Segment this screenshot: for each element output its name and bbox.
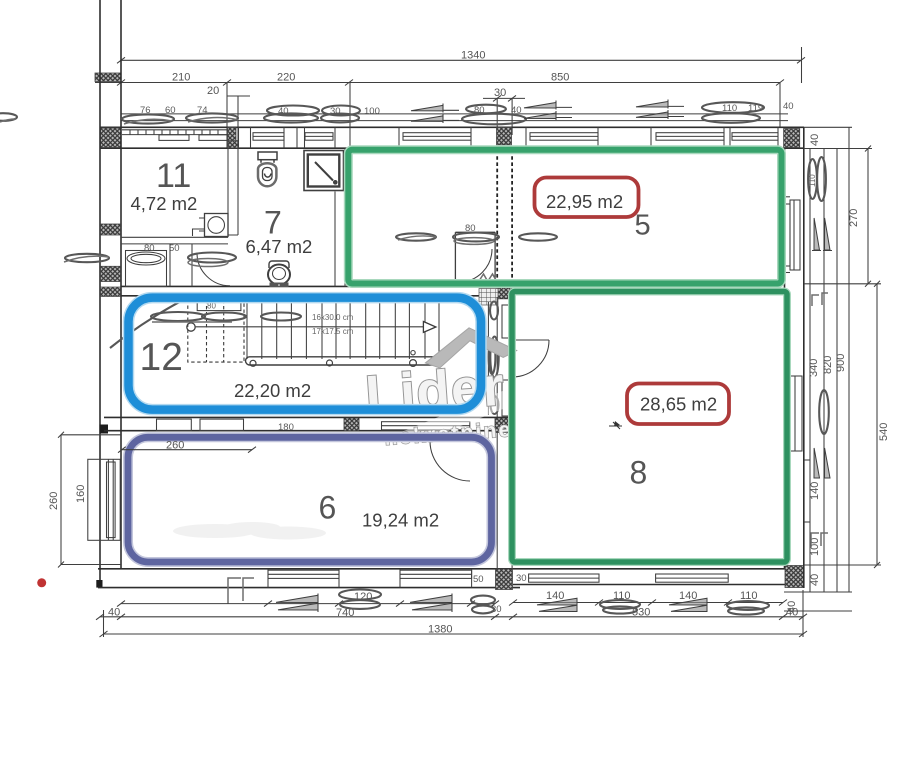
svg-text:30: 30 bbox=[491, 604, 502, 615]
svg-text:540: 540 bbox=[878, 423, 890, 441]
svg-text:140: 140 bbox=[809, 482, 821, 500]
svg-text:17x17.5 cm: 17x17.5 cm bbox=[312, 327, 354, 336]
svg-text:820: 820 bbox=[822, 356, 834, 374]
svg-text:8: 8 bbox=[630, 455, 648, 491]
svg-text:100: 100 bbox=[364, 106, 380, 117]
svg-text:40: 40 bbox=[783, 101, 794, 112]
svg-text:12: 12 bbox=[140, 336, 183, 379]
svg-text:110: 110 bbox=[808, 174, 817, 187]
svg-text:19,24 m2: 19,24 m2 bbox=[362, 509, 439, 530]
svg-text:22,95 m2: 22,95 m2 bbox=[546, 191, 623, 212]
svg-text:270: 270 bbox=[848, 209, 860, 227]
svg-text:20: 20 bbox=[207, 85, 219, 97]
svg-text:1380: 1380 bbox=[428, 624, 452, 636]
svg-text:30: 30 bbox=[494, 87, 506, 99]
svg-text:260: 260 bbox=[48, 492, 60, 510]
svg-text:80: 80 bbox=[144, 243, 155, 254]
svg-text:4,72 m2: 4,72 m2 bbox=[131, 193, 198, 214]
svg-text:22,20 m2: 22,20 m2 bbox=[234, 380, 311, 401]
svg-text:40: 40 bbox=[809, 574, 821, 586]
svg-text:50: 50 bbox=[169, 243, 180, 254]
svg-text:30: 30 bbox=[516, 573, 527, 584]
svg-text:140: 140 bbox=[546, 590, 564, 602]
svg-text:1340: 1340 bbox=[461, 50, 485, 62]
svg-text:50: 50 bbox=[473, 574, 484, 585]
svg-text:340: 340 bbox=[808, 359, 820, 377]
svg-text:6: 6 bbox=[319, 489, 337, 525]
svg-text:220: 220 bbox=[277, 72, 295, 84]
svg-text:850: 850 bbox=[551, 72, 569, 84]
svg-text:5: 5 bbox=[635, 210, 651, 242]
svg-text:40: 40 bbox=[108, 607, 120, 619]
svg-text:40: 40 bbox=[809, 134, 821, 146]
svg-text:11: 11 bbox=[156, 157, 191, 195]
svg-text:6,47 m2: 6,47 m2 bbox=[246, 236, 313, 257]
svg-text:40: 40 bbox=[786, 601, 798, 613]
svg-text:210: 210 bbox=[172, 72, 190, 84]
svg-text:16x30.0 cm: 16x30.0 cm bbox=[312, 313, 354, 322]
svg-text:28,65 m2: 28,65 m2 bbox=[640, 394, 717, 415]
svg-text:180: 180 bbox=[278, 422, 294, 433]
svg-text:900: 900 bbox=[835, 354, 847, 372]
svg-text:160: 160 bbox=[75, 485, 87, 503]
